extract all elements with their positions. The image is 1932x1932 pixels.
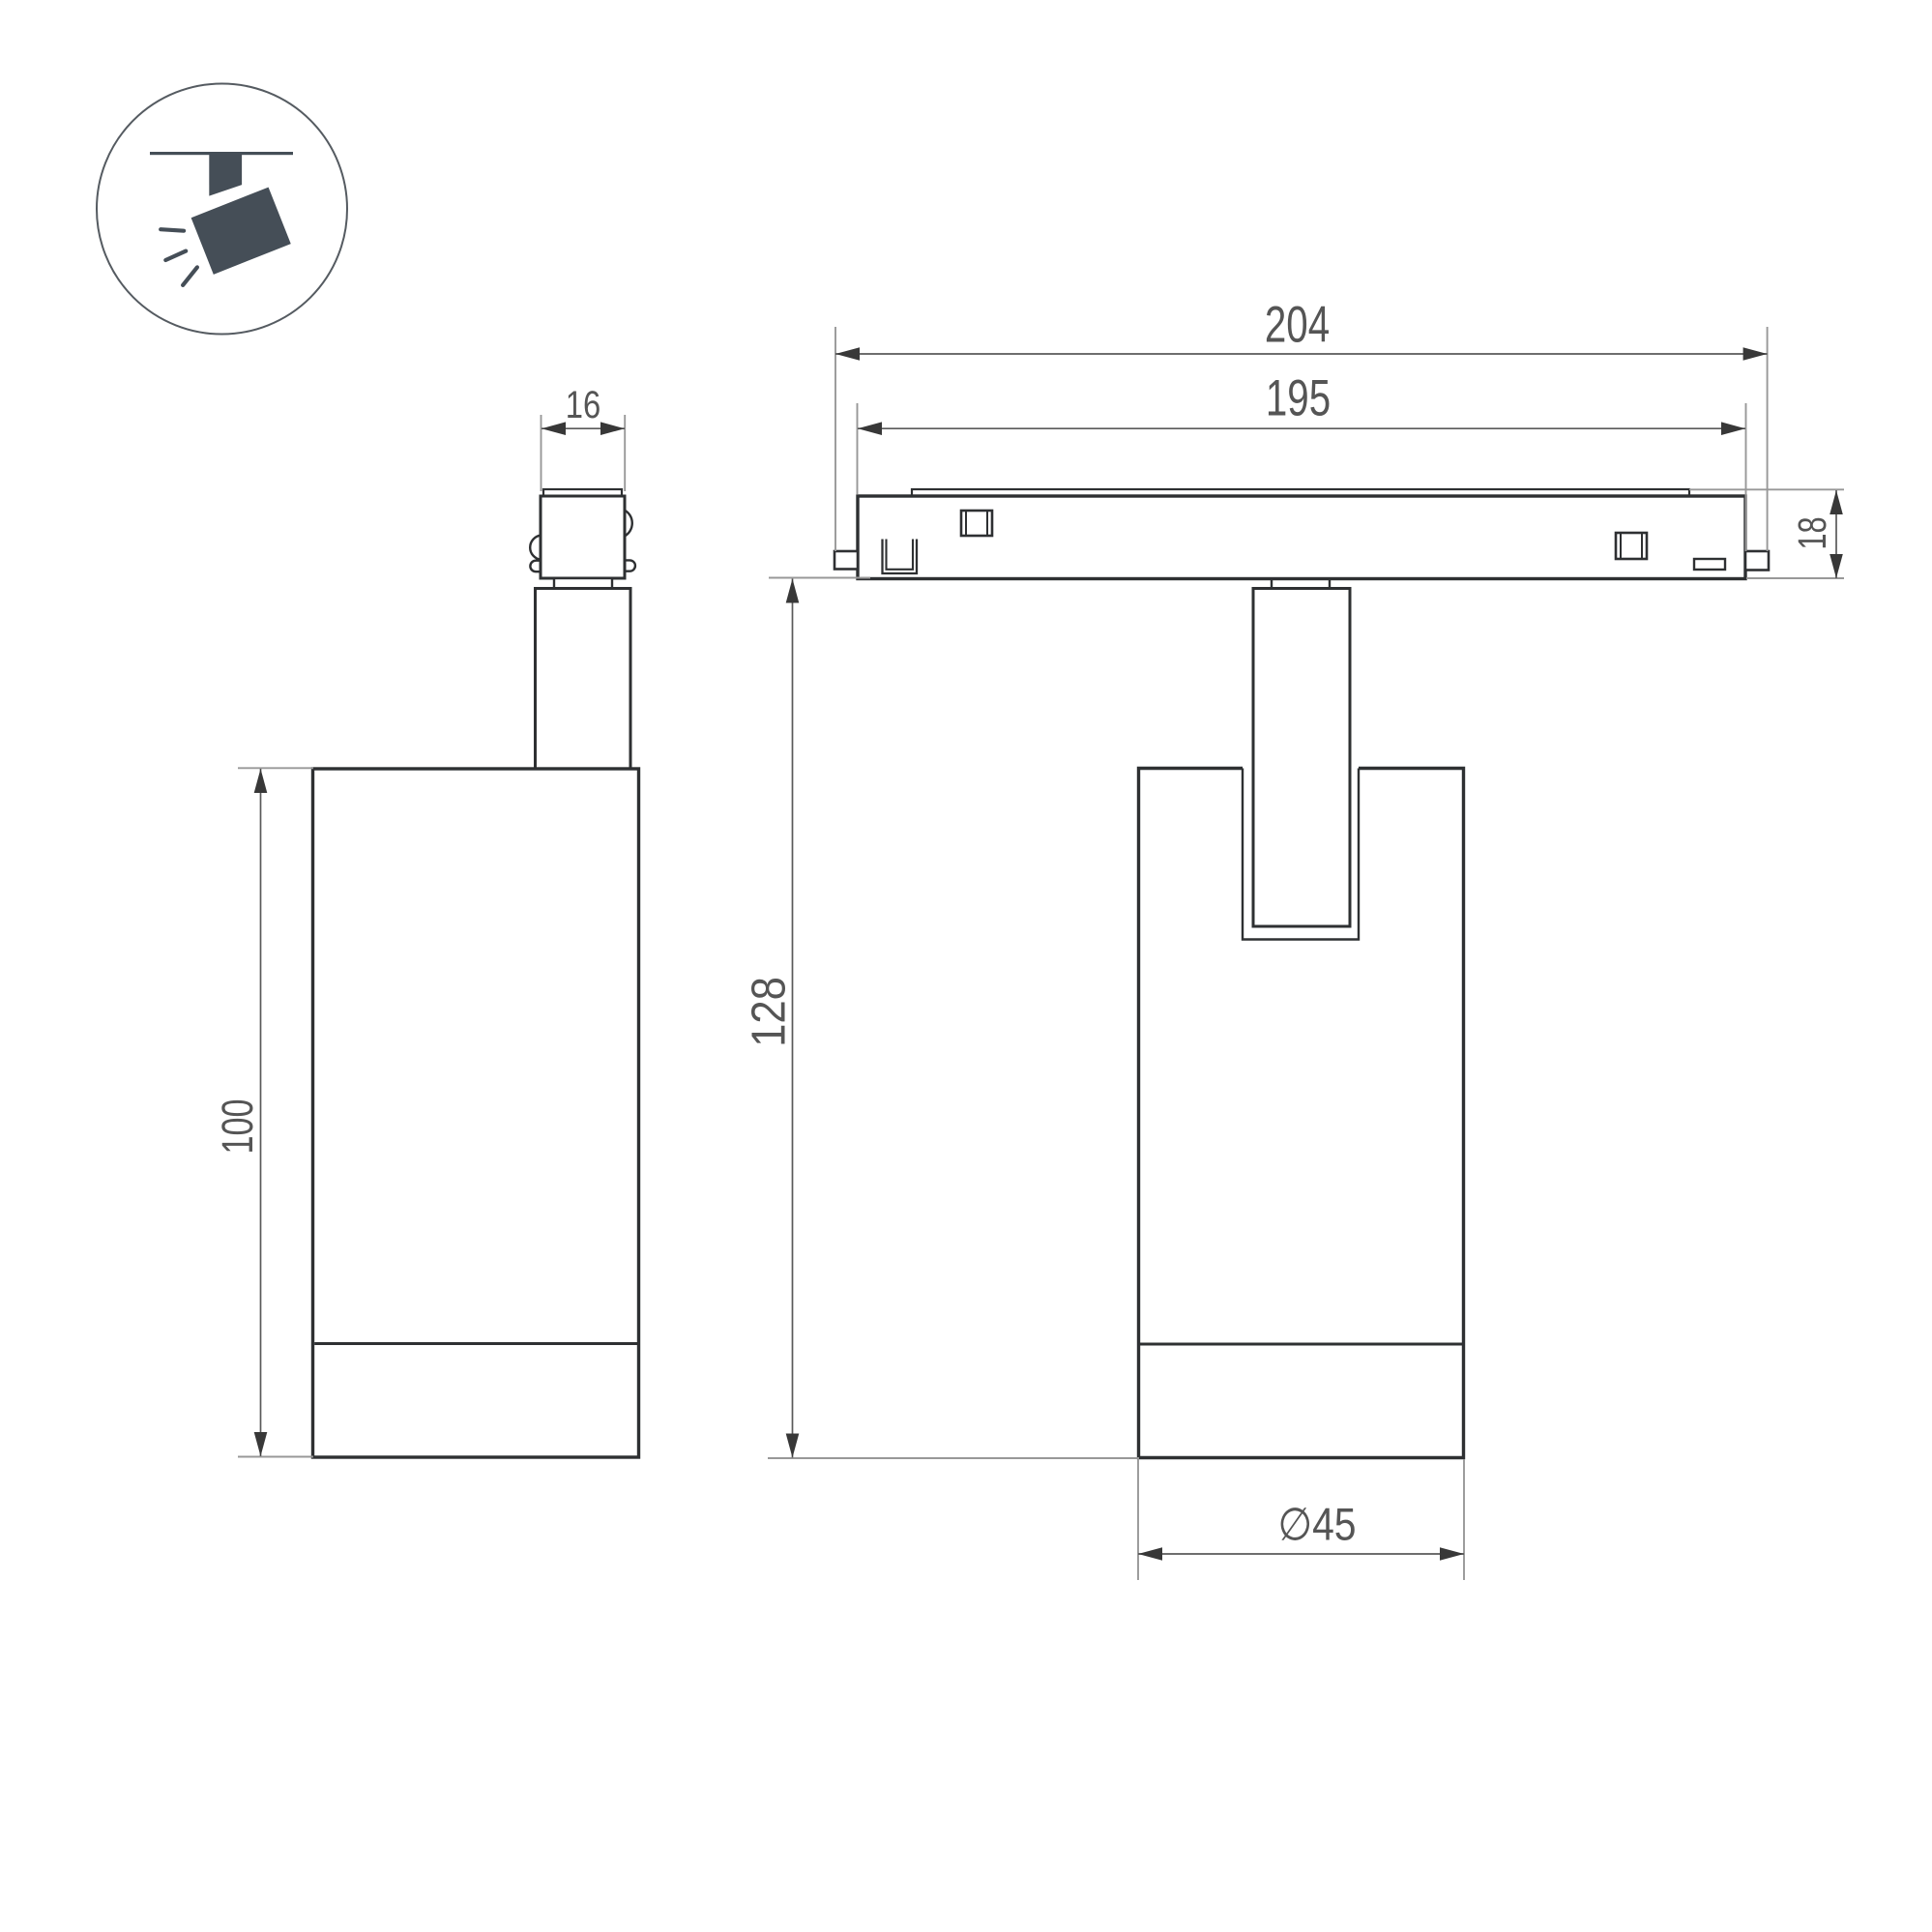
svg-text:100: 100 (215, 1098, 263, 1154)
svg-text:195: 195 (1266, 368, 1331, 426)
svg-text:204: 204 (1265, 295, 1330, 353)
svg-text:∅45: ∅45 (1277, 1500, 1356, 1550)
svg-text:128: 128 (742, 977, 795, 1047)
svg-text:16: 16 (566, 383, 600, 426)
svg-text:18: 18 (1790, 516, 1834, 549)
